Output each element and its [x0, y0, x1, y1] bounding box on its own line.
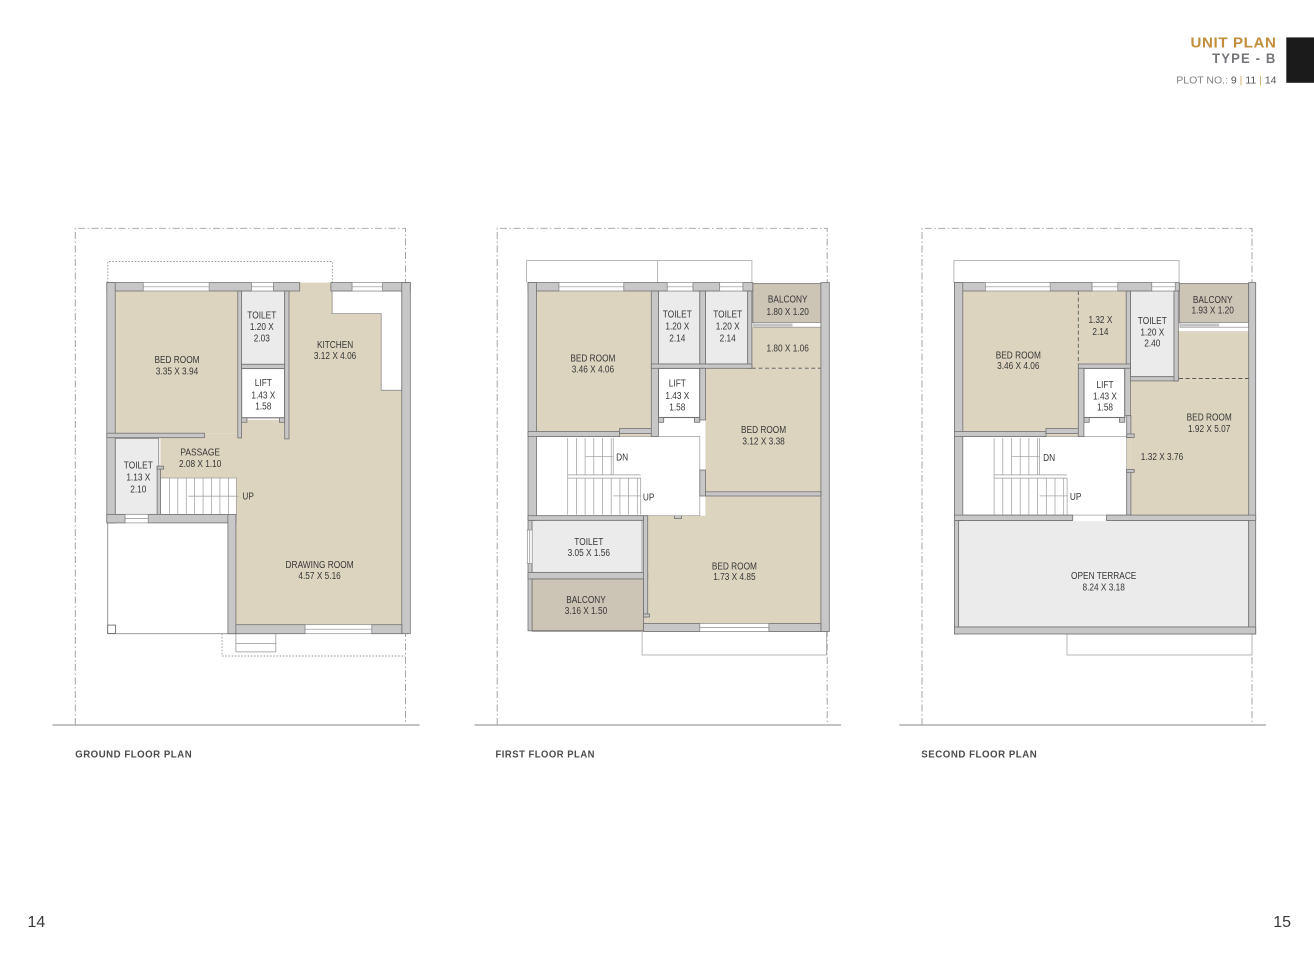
svg-text:KITCHEN: KITCHEN: [317, 340, 353, 351]
svg-text:BALCONY: BALCONY: [566, 595, 606, 606]
svg-text:3.46 X 4.06: 3.46 X 4.06: [572, 365, 615, 376]
svg-text:3.12 X 4.06: 3.12 X 4.06: [314, 351, 357, 362]
svg-text:UNIT PLAN: UNIT PLAN: [1191, 36, 1277, 52]
svg-text:BED ROOM: BED ROOM: [154, 355, 199, 366]
svg-text:1.20 X: 1.20 X: [250, 322, 274, 333]
svg-text:LIFT: LIFT: [255, 378, 272, 389]
svg-text:8.24 X 3.18: 8.24 X 3.18: [1083, 582, 1126, 593]
svg-text:3.35 X 3.94: 3.35 X 3.94: [156, 367, 199, 378]
svg-text:1.80 X 1.20: 1.80 X 1.20: [767, 307, 810, 318]
svg-text:1.20 X: 1.20 X: [716, 322, 740, 333]
svg-text:1.58: 1.58: [255, 401, 272, 412]
svg-text:2.10: 2.10: [130, 484, 147, 495]
svg-text:4.57 X 5.16: 4.57 X 5.16: [298, 571, 341, 582]
svg-text:DN: DN: [1043, 453, 1055, 464]
svg-text:BED ROOM: BED ROOM: [996, 350, 1041, 361]
svg-text:2.14: 2.14: [669, 333, 686, 344]
svg-text:BED ROOM: BED ROOM: [712, 561, 757, 572]
svg-text:1.32 X 3.76: 1.32 X 3.76: [1141, 452, 1184, 463]
svg-text:2.03: 2.03: [254, 334, 271, 345]
svg-text:1.20 X: 1.20 X: [665, 322, 689, 333]
svg-text:UP: UP: [1070, 492, 1082, 503]
svg-text:14: 14: [28, 914, 46, 931]
svg-text:SECOND FLOOR PLAN: SECOND FLOOR PLAN: [921, 750, 1037, 761]
svg-text:1.20 X: 1.20 X: [1140, 328, 1164, 339]
svg-text:2.08 X 1.10: 2.08 X 1.10: [179, 459, 222, 470]
svg-text:1.43 X: 1.43 X: [665, 391, 689, 402]
svg-text:LIFT: LIFT: [669, 379, 686, 390]
svg-text:1.43 X: 1.43 X: [1093, 392, 1117, 403]
svg-text:2.40: 2.40: [1144, 339, 1161, 350]
svg-text:1.43 X: 1.43 X: [251, 391, 275, 402]
svg-text:TOILET: TOILET: [247, 311, 276, 322]
svg-text:UP: UP: [242, 492, 254, 503]
svg-text:TOILET: TOILET: [124, 461, 153, 472]
svg-text:UP: UP: [643, 492, 655, 503]
svg-text:DRAWING ROOM: DRAWING ROOM: [286, 560, 354, 571]
svg-text:1.13 X: 1.13 X: [126, 473, 150, 484]
svg-text:3.05 X 1.56: 3.05 X 1.56: [568, 548, 611, 559]
svg-text:3.16 X 1.50: 3.16 X 1.50: [565, 606, 608, 617]
svg-text:TOILET: TOILET: [574, 537, 603, 548]
svg-text:1.58: 1.58: [1097, 402, 1114, 413]
svg-text:1.32 X: 1.32 X: [1088, 315, 1112, 326]
svg-text:TOILET: TOILET: [663, 310, 692, 321]
svg-text:15: 15: [1273, 914, 1291, 931]
svg-text:OPEN TERRACE: OPEN TERRACE: [1071, 571, 1137, 582]
svg-text:PLOT NO.: 9 | 11 | 14: PLOT NO.: 9 | 11 | 14: [1176, 75, 1276, 87]
svg-text:BED ROOM: BED ROOM: [570, 354, 615, 365]
svg-text:1.58: 1.58: [669, 402, 686, 413]
svg-text:BALCONY: BALCONY: [1193, 295, 1233, 306]
svg-text:1.73 X 4.85: 1.73 X 4.85: [713, 572, 756, 583]
svg-text:1.80 X 1.06: 1.80 X 1.06: [767, 344, 810, 355]
svg-text:2.14: 2.14: [720, 333, 737, 344]
svg-text:TOILET: TOILET: [713, 310, 742, 321]
svg-text:GROUND FLOOR PLAN: GROUND FLOOR PLAN: [75, 750, 192, 761]
svg-text:DN: DN: [616, 452, 628, 463]
svg-text:TYPE - B: TYPE - B: [1212, 51, 1276, 66]
svg-text:3.12 X 3.38: 3.12 X 3.38: [742, 436, 785, 447]
svg-text:LIFT: LIFT: [1097, 380, 1114, 391]
svg-text:BED ROOM: BED ROOM: [741, 425, 786, 436]
svg-text:1.92 X 5.07: 1.92 X 5.07: [1188, 424, 1230, 435]
svg-text:BALCONY: BALCONY: [768, 295, 808, 306]
svg-text:2.14: 2.14: [1092, 327, 1109, 338]
svg-text:3.46 X 4.06: 3.46 X 4.06: [997, 361, 1040, 372]
svg-text:BED ROOM: BED ROOM: [1187, 412, 1232, 423]
svg-text:1.93 X 1.20: 1.93 X 1.20: [1192, 306, 1235, 317]
svg-text:PASSAGE: PASSAGE: [180, 447, 220, 458]
svg-text:FIRST FLOOR PLAN: FIRST FLOOR PLAN: [496, 750, 596, 761]
svg-text:TOILET: TOILET: [1138, 316, 1167, 327]
